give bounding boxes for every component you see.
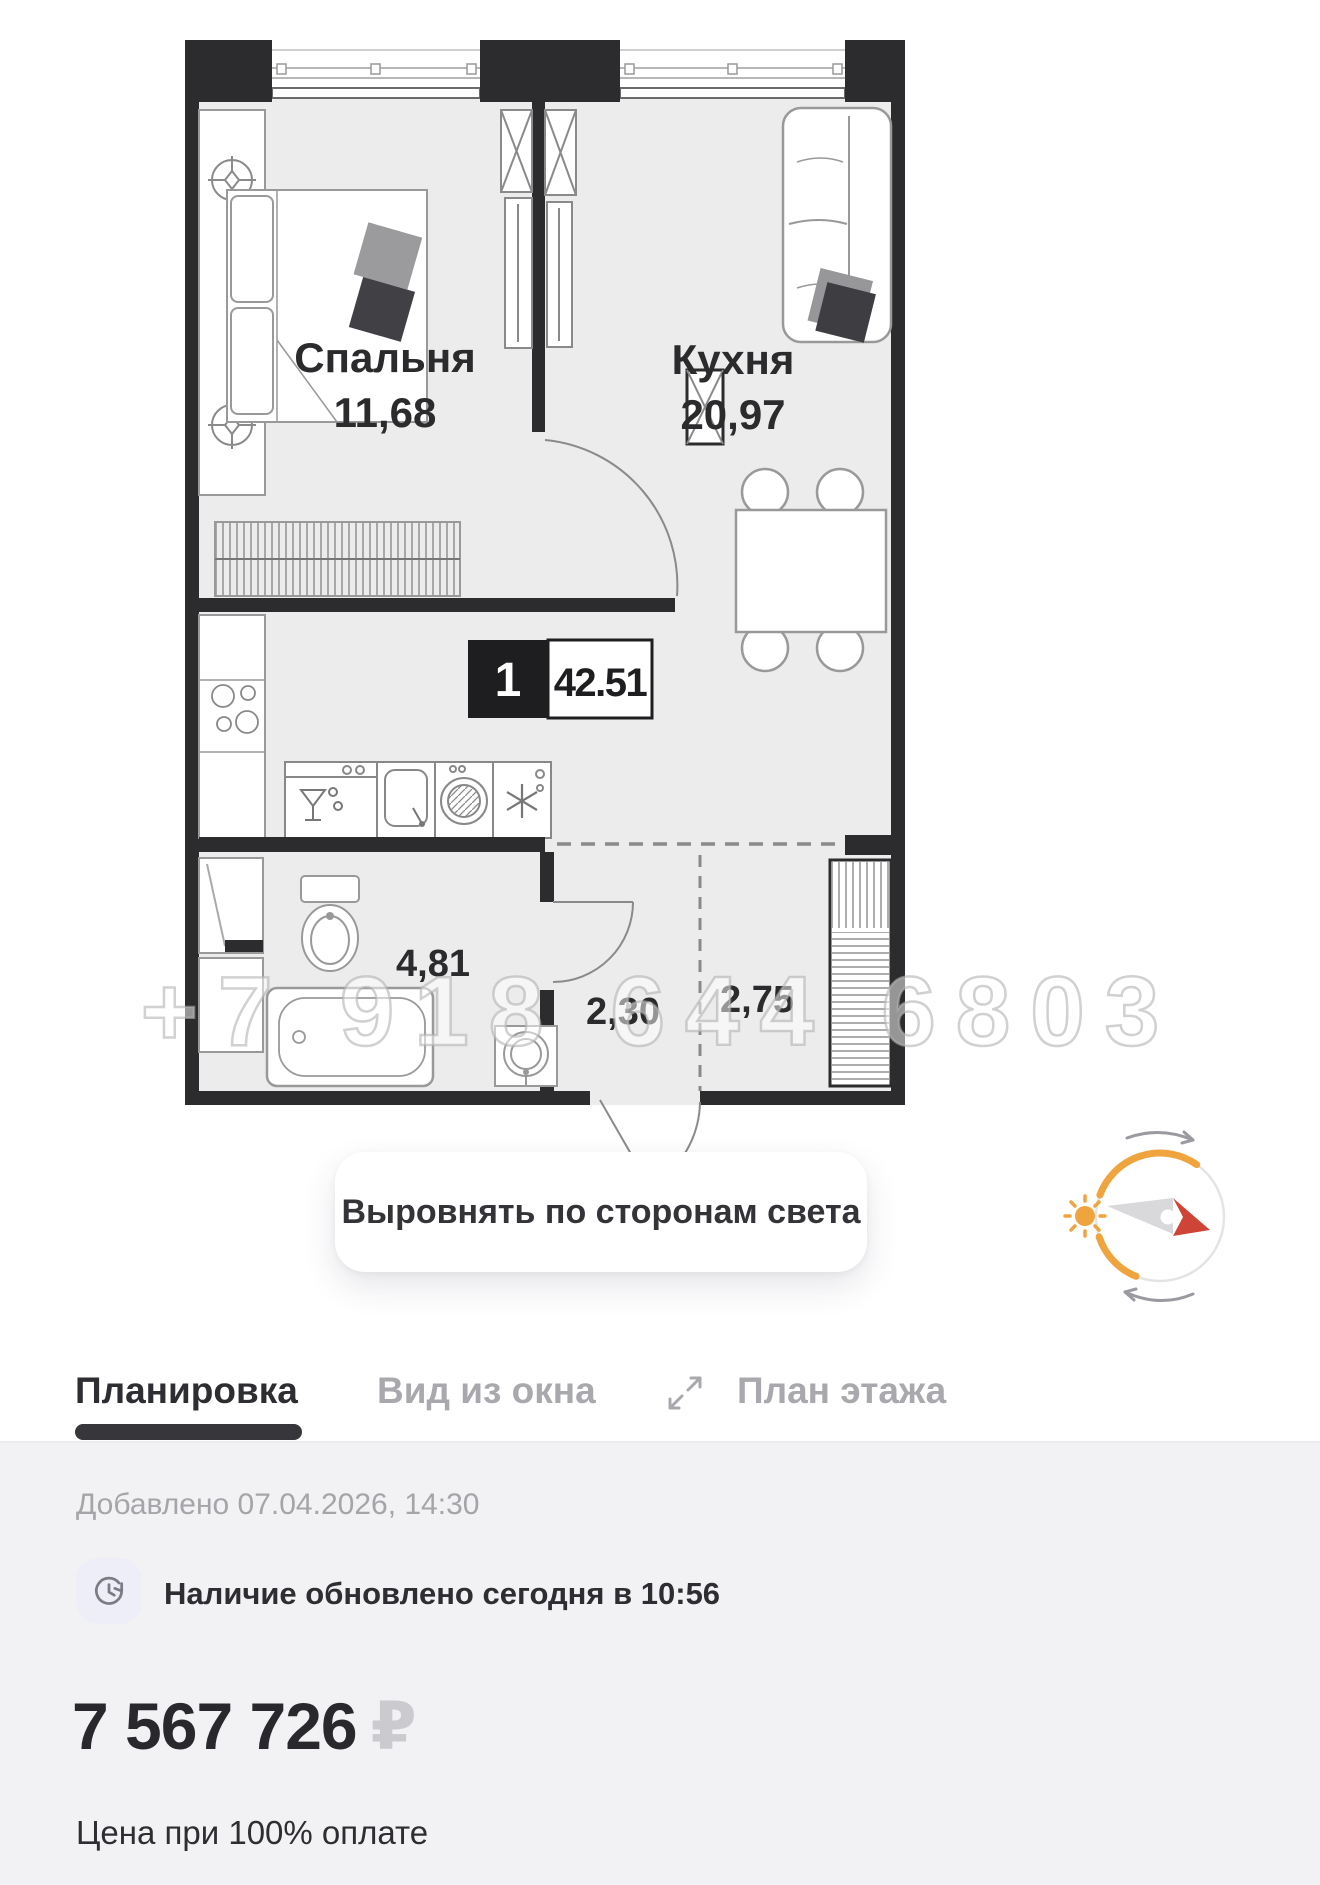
room-label-bedroom: Спальня — [294, 334, 475, 381]
badge-total-area: 42.51 — [554, 661, 648, 705]
dining-table — [736, 510, 886, 632]
availability-text: Наличие обновлено сегодня в 10:56 — [164, 1576, 720, 1612]
window-bedroom — [272, 40, 480, 98]
compass-widget[interactable] — [1055, 1122, 1255, 1312]
room-area-hall: 2,30 — [586, 991, 660, 1033]
floor-plan-drawing: Спальня 11,68 Кухня 20,97 4,81 2,30 2,75… — [185, 40, 905, 1190]
added-date: Добавлено 07.04.2026, 14:30 — [76, 1488, 479, 1522]
stove-column — [199, 615, 265, 838]
active-tab-indicator — [75, 1424, 302, 1440]
room-area-bedroom: 11,68 — [334, 389, 437, 436]
wardrobe-wall — [845, 835, 891, 855]
bathtub — [267, 988, 433, 1086]
hall-wall — [540, 852, 554, 902]
tab-floor-plan[interactable]: План этажа — [737, 1370, 946, 1412]
badge-rooms-count: 1 — [495, 654, 522, 707]
bed — [227, 190, 430, 422]
tab-layout[interactable]: Планировка — [75, 1370, 298, 1412]
room-area-wardrobe: 2,75 — [720, 979, 794, 1021]
availability-clock-icon — [76, 1558, 142, 1624]
toilet — [301, 876, 359, 971]
price-note: Цена при 100% оплате — [76, 1814, 428, 1852]
area-badge: 1 42.51 — [468, 640, 652, 718]
washbasin — [495, 1026, 557, 1086]
expand-icon[interactable] — [664, 1372, 706, 1414]
align-to-compass-button[interactable]: Выровнять по сторонам света — [335, 1152, 867, 1272]
price: 7 567 726₽ — [72, 1688, 416, 1765]
divider-wall — [532, 102, 545, 432]
wardrobe-rack — [830, 860, 891, 1086]
room-label-kitchen: Кухня — [672, 336, 795, 383]
bedroom-radiator — [215, 522, 460, 596]
bathroom-wall — [199, 837, 545, 852]
apartment-listing-screen: Спальня 11,68 Кухня 20,97 4,81 2,30 2,75… — [0, 0, 1320, 1885]
window-kitchen — [620, 40, 845, 98]
price-value: 7 567 726 — [72, 1689, 357, 1763]
floor-plan: Спальня 11,68 Кухня 20,97 4,81 2,30 2,75… — [185, 40, 905, 1190]
room-area-kitchen: 20,97 — [680, 391, 785, 438]
ruble-sign: ₽ — [371, 1689, 416, 1763]
tab-window-view[interactable]: Вид из окна — [377, 1370, 596, 1412]
room-area-bathroom: 4,81 — [396, 943, 470, 985]
sun-icon — [1065, 1196, 1105, 1236]
kitchen-counter — [285, 762, 551, 838]
bedroom-wall — [199, 598, 675, 612]
